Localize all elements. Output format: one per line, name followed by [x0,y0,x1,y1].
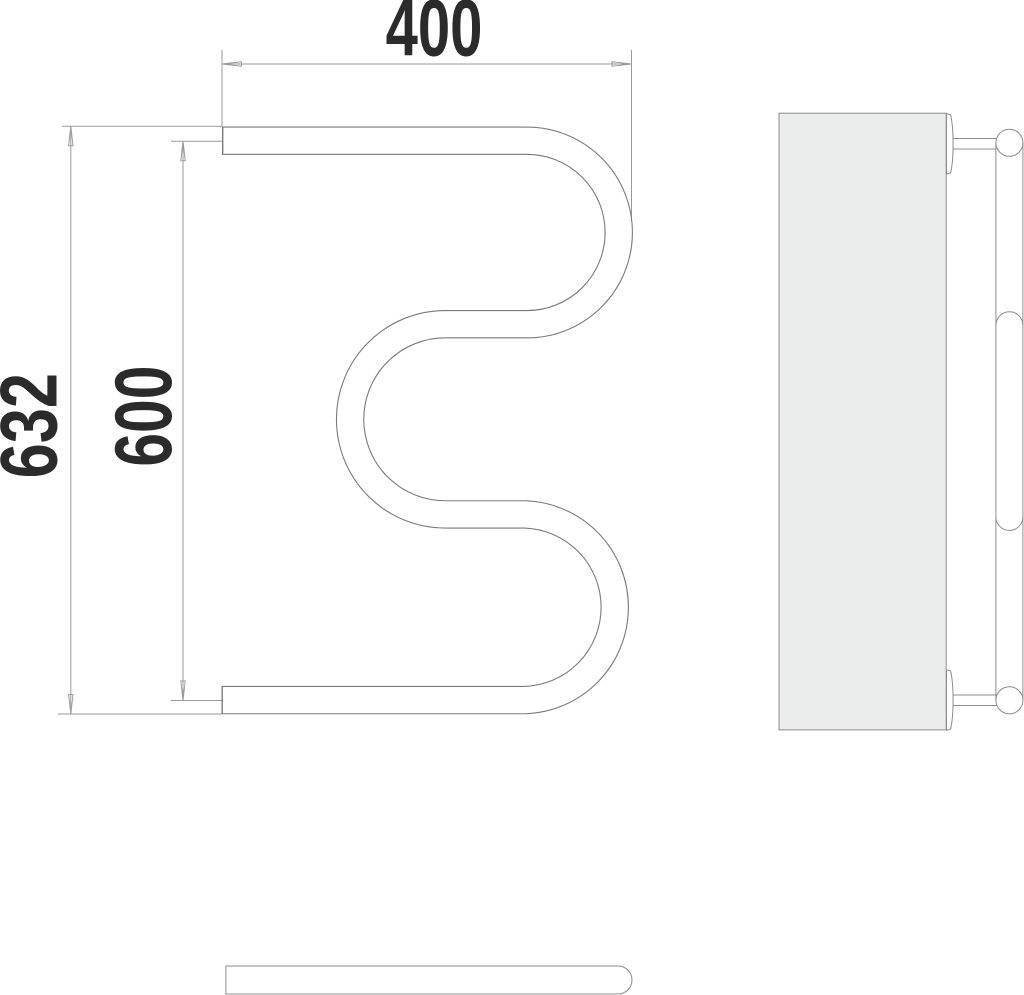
svg-text:400: 400 [386,0,483,73]
svg-text:600: 600 [99,366,190,467]
svg-text:632: 632 [0,373,74,478]
